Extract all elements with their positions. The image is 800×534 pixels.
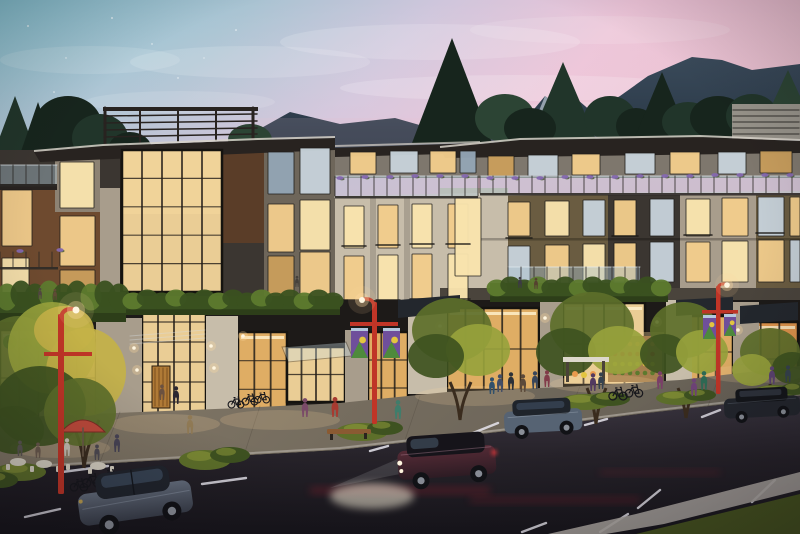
rendering-stage: [0, 0, 800, 534]
vignette-overlay: [0, 0, 800, 534]
building-rendering-image: [0, 0, 800, 534]
